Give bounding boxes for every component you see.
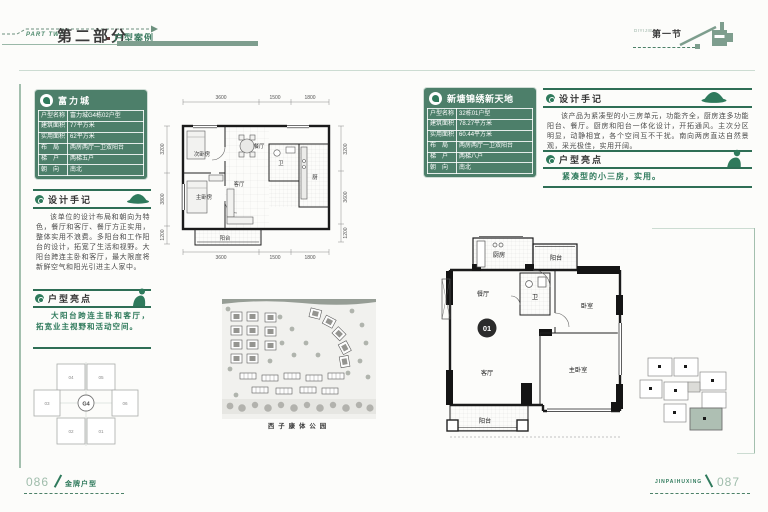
- room-label-living: 客厅: [481, 369, 493, 377]
- frame-right-line: [754, 228, 755, 454]
- room-label-balcony: 阳台: [220, 234, 231, 242]
- left-highlight-title: 户型亮点: [48, 292, 92, 305]
- rule: [543, 150, 752, 152]
- table-row: 建筑面积78.27平方米: [428, 119, 533, 130]
- right-footer-label: JINPAIHUXING: [655, 479, 702, 485]
- frame-right-corner-b: [737, 453, 755, 454]
- room-label-bath: 卫: [532, 294, 538, 301]
- right-highlight-title: 户型亮点: [559, 153, 603, 166]
- section-ring-icon: [35, 294, 44, 303]
- table-row: 布 局两房两厅一卫双阳台: [39, 143, 144, 154]
- svg-text:1800: 1800: [304, 255, 315, 261]
- right-highlight-header: 户型亮点: [546, 153, 603, 166]
- left-highlight-header: 户型亮点: [35, 292, 92, 305]
- table-row: 实用面积60.44平方米: [428, 130, 533, 141]
- keyplan-unit-label: 01: [98, 429, 104, 434]
- frame-top-line: [19, 70, 755, 71]
- room-label-living: 客厅: [234, 180, 245, 188]
- keyplan-unit-label: 05: [98, 375, 104, 380]
- site-plan: 西子康体公园: [222, 299, 376, 432]
- svg-text:1500: 1500: [269, 255, 280, 261]
- right-floorplan: 01 厨房 阳台 餐厅 卫 卧室 客厅 主卧室 阳台: [435, 233, 625, 441]
- table-row: 朝 向南北: [428, 163, 533, 174]
- room-label-bed1: 主卧房: [196, 193, 212, 201]
- table-row: 户型名称富力城G4栋02户型: [39, 111, 144, 122]
- svg-text:3600: 3600: [215, 255, 226, 261]
- table-row: 户型名称32栋01户型: [428, 109, 533, 120]
- svg-text:3600: 3600: [215, 95, 226, 101]
- frame-right-corner-h: [652, 228, 755, 229]
- left-info-table: 户型名称富力城G4栋02户型 建筑面积77平方米 实用面积62平方米 布 局两房…: [38, 110, 144, 176]
- right-notes-header: 设计手记: [546, 92, 603, 105]
- section-dash-line: [633, 47, 695, 48]
- rule: [33, 306, 151, 308]
- footer-slash: [54, 474, 62, 487]
- room-label-dining: 餐厅: [477, 290, 489, 298]
- left-notes-title: 设计手记: [48, 193, 92, 206]
- right-project-infobox: 新塘锦绣新天地 户型名称32栋01户型 建筑面积78.27平方米 实用面积60.…: [424, 88, 536, 177]
- rule: [543, 167, 752, 169]
- svg-text:1800: 1800: [304, 95, 315, 101]
- header-thick-bar: [117, 41, 258, 46]
- svg-text:3200: 3200: [343, 143, 349, 154]
- left-project-name: 富力城: [58, 94, 91, 107]
- project-logo-icon: [40, 94, 53, 107]
- table-row: 实用面积62平方米: [39, 132, 144, 143]
- title-bullet: [107, 37, 110, 40]
- rule: [33, 347, 151, 349]
- left-project-infobox: 富力城 户型名称富力城G4栋02户型 建筑面积77平方米 实用面积62平方米 布…: [35, 90, 147, 179]
- hat-icon: [126, 189, 150, 205]
- rule: [543, 186, 752, 188]
- siteplan-caption: 西子康体公园: [268, 421, 330, 430]
- keyplan-unit-label: 02: [68, 429, 74, 434]
- room-label-bed2: 卧室: [581, 302, 593, 310]
- footer-backslash: [705, 474, 713, 487]
- svg-text:1200: 1200: [160, 229, 166, 240]
- table-row: 布 局两房两厅一卫双阳台: [428, 141, 533, 152]
- room-label-dining: 餐厅: [254, 142, 265, 150]
- header-thin-rule: [2, 44, 118, 45]
- person-icon: [130, 287, 148, 307]
- right-info-table: 户型名称32栋01户型 建筑面积78.27平方米 实用面积60.44平方米 布 …: [427, 108, 533, 174]
- room-label-kitchen: 厨: [312, 174, 318, 181]
- right-highlight-body: 紧凑型的小三房，实用。: [547, 171, 749, 182]
- right-project-name: 新塘锦绣新天地: [447, 92, 514, 105]
- unit-number-label: 01: [483, 324, 491, 333]
- left-highlight-body: 大阳台跨连主卧和客厅，拓宽业主视野和活动空间。: [36, 310, 150, 332]
- svg-text:3600: 3600: [343, 191, 349, 202]
- section-ring-icon: [546, 94, 555, 103]
- room-label-kitchen: 厨房: [493, 251, 505, 259]
- left-notes-header: 设计手记: [35, 193, 92, 206]
- left-notes-body: 该单位的设计布局和朝向为特色，餐厅和客厅、餐厅方正实用，整体实用不浪费。多阳台和…: [36, 213, 150, 273]
- room-label-balcony-bottom: 阳台: [479, 417, 491, 425]
- project-logo-icon: [429, 92, 442, 105]
- room-label-bed2: 次卧房: [194, 150, 210, 158]
- left-footer-dash: [24, 493, 124, 494]
- room-label-balcony-top: 阳台: [550, 254, 562, 262]
- keyplan-unit-label: 04: [68, 375, 74, 380]
- right-keyplan: [636, 348, 742, 432]
- room-label-bath: 卫: [278, 160, 284, 167]
- left-floorplan: 3600 1500 1800 3600 1500 1800 3200 3800 …: [159, 89, 351, 263]
- right-notes-body: 该产品为紧凑型的小三房单元，功能齐全，厨房连多功能阳台、餐厅。厨房和阳台一体化设…: [547, 112, 749, 152]
- right-page-number: 087: [717, 475, 740, 489]
- rule: [33, 207, 151, 209]
- table-row: 梯 户两梯五户: [39, 154, 144, 165]
- keyplan-unit-label: 03: [44, 401, 50, 406]
- section-ring-icon: [546, 155, 555, 164]
- room-label-bed1: 主卧室: [569, 366, 588, 374]
- table-row: 朝 向南北: [39, 165, 144, 176]
- house-icon: [676, 16, 738, 50]
- left-page-number: 086: [26, 475, 49, 489]
- section-dash-endcap: [695, 44, 700, 49]
- svg-text:1500: 1500: [269, 95, 280, 101]
- book-spread: PART TWO 第二部分 户型案例 DIYIJIE 第一节 富力城 户型名称富…: [0, 0, 768, 512]
- left-keyplan: 04 05 03 06 02 01 G4: [30, 356, 142, 452]
- rule: [543, 106, 752, 108]
- left-footer-label: 金牌户型: [65, 479, 97, 489]
- right-footer-dash: [650, 493, 750, 494]
- hat-icon: [700, 86, 728, 104]
- section-sublabel: DIYIJIE: [634, 28, 653, 33]
- svg-text:1200: 1200: [343, 227, 349, 238]
- keyplan-unit-label: 06: [122, 401, 128, 406]
- svg-text:3800: 3800: [160, 193, 166, 204]
- table-row: 建筑面积77平方米: [39, 121, 144, 132]
- svg-text:3200: 3200: [160, 143, 166, 154]
- section-ring-icon: [35, 195, 44, 204]
- right-notes-title: 设计手记: [559, 92, 603, 105]
- keyplan-core-label: G4: [82, 402, 90, 408]
- frame-left-line: [19, 84, 21, 468]
- table-row: 梯 户两梯八户: [428, 152, 533, 163]
